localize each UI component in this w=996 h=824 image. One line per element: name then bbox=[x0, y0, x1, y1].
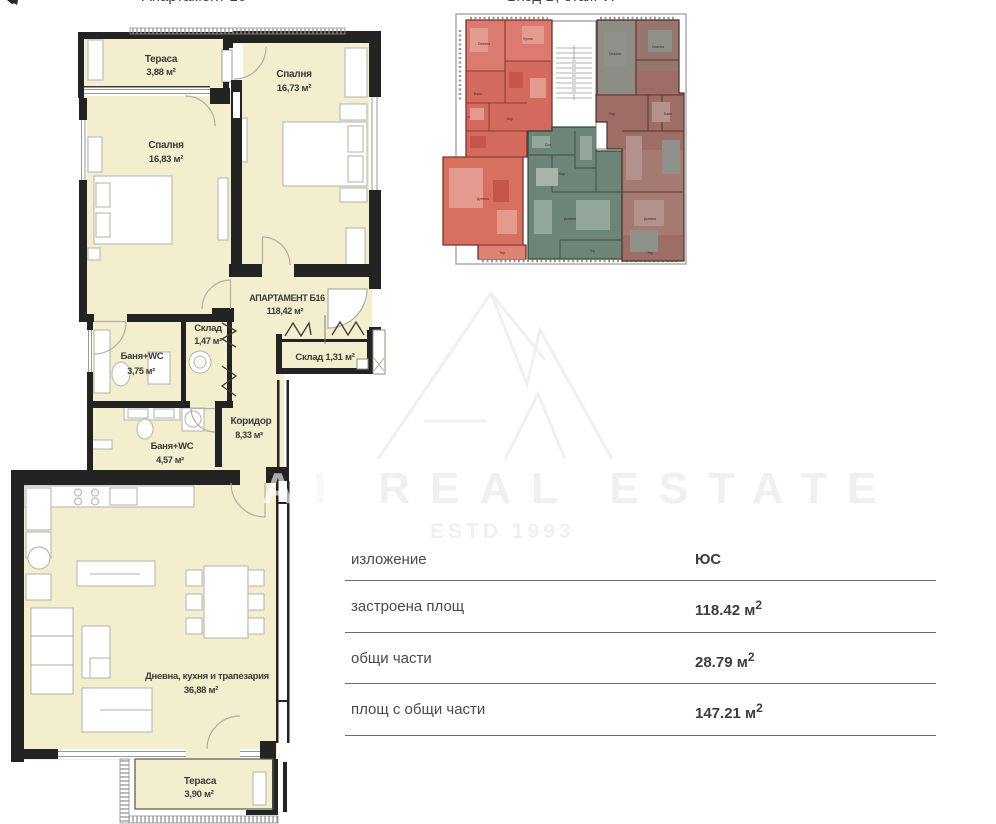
svg-text:3,90 м²: 3,90 м² bbox=[184, 789, 213, 800]
svg-text:Склад 1,31 м²: Склад 1,31 м² bbox=[295, 352, 354, 363]
svg-text:Склад: Склад bbox=[194, 323, 222, 334]
svg-text:Спалня: Спалня bbox=[478, 42, 490, 46]
svg-text:16,83 м²: 16,83 м² bbox=[149, 154, 183, 165]
svg-text:Тераса: Тераса bbox=[145, 54, 178, 65]
svg-text:Коридор: Коридор bbox=[231, 416, 272, 427]
svg-text:Кор: Кор bbox=[507, 117, 513, 121]
svg-text:1,47 м²: 1,47 м² bbox=[194, 336, 222, 346]
svg-text:Дневна: Дневна bbox=[564, 217, 576, 221]
svg-text:Баня+WC: Баня+WC bbox=[121, 351, 164, 362]
svg-text:Спалня: Спалня bbox=[652, 45, 664, 49]
svg-text:Спалня: Спалня bbox=[609, 52, 621, 56]
svg-text:Кор: Кор bbox=[609, 112, 615, 116]
svg-text:4,57 м²: 4,57 м² bbox=[156, 455, 184, 465]
svg-text:Тераса: Тераса bbox=[184, 776, 217, 787]
svg-text:Тер: Тер bbox=[499, 251, 505, 255]
svg-text:Баня+WC: Баня+WC bbox=[151, 441, 194, 452]
svg-text:Спалня: Спалня bbox=[276, 69, 312, 80]
svg-text:118,42 м²: 118,42 м² bbox=[267, 306, 304, 316]
svg-text:8,33 м²: 8,33 м² bbox=[235, 430, 263, 440]
svg-text:Дневна: Дневна bbox=[477, 197, 489, 201]
svg-text:АПАРТАМЕНТ Б16: АПАРТАМЕНТ Б16 bbox=[249, 293, 325, 303]
svg-text:36,88 м²: 36,88 м² bbox=[184, 685, 218, 696]
svg-text:Спалня: Спалня bbox=[148, 140, 184, 151]
svg-text:Дневна, кухня и трапезария: Дневна, кухня и трапезария bbox=[145, 671, 269, 682]
svg-text:3,75 м²: 3,75 м² bbox=[127, 366, 155, 376]
svg-text:Кухня: Кухня bbox=[523, 37, 532, 41]
svg-text:Баня: Баня bbox=[474, 92, 482, 96]
svg-text:Кор: Кор bbox=[559, 172, 565, 176]
svg-text:Дневна: Дневна bbox=[644, 217, 656, 221]
svg-text:Баня: Баня bbox=[664, 112, 672, 116]
svg-text:16,73 м²: 16,73 м² bbox=[277, 83, 311, 94]
svg-text:3,88 м²: 3,88 м² bbox=[146, 67, 175, 78]
svg-text:Тер: Тер bbox=[589, 249, 595, 253]
svg-text:Тер: Тер bbox=[647, 251, 653, 255]
svg-text:Скл: Скл bbox=[545, 143, 551, 147]
